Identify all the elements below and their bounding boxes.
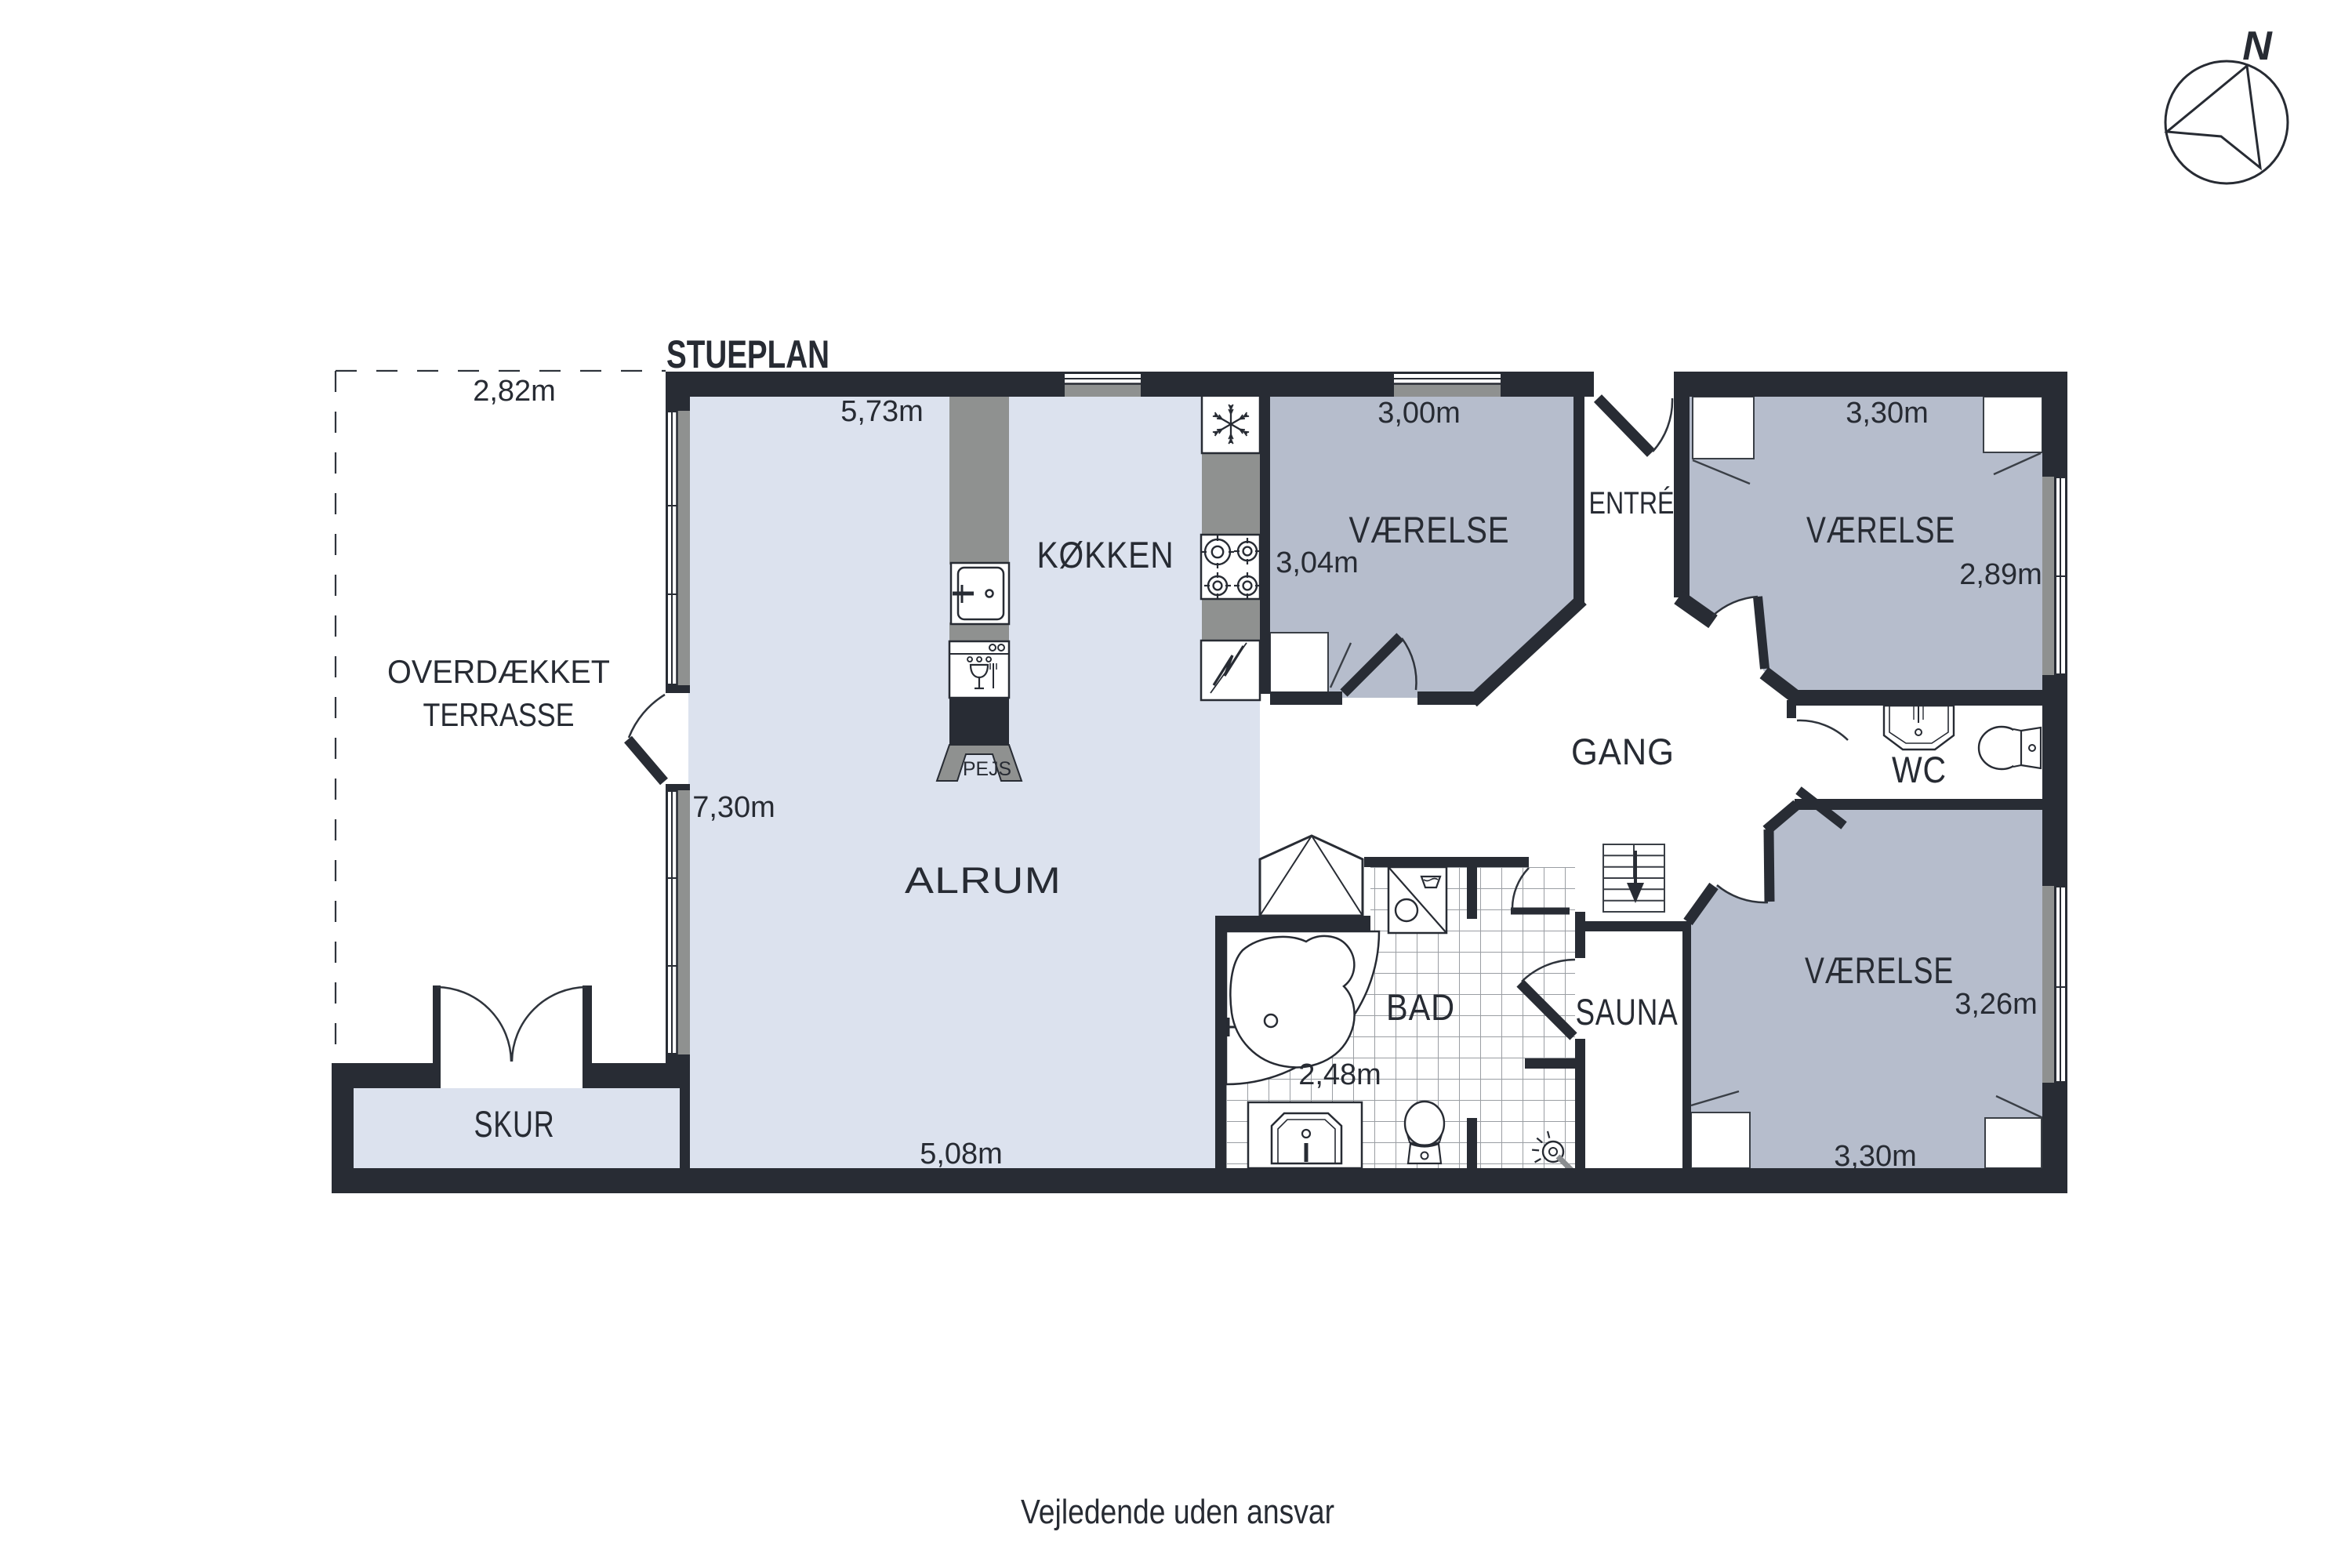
svg-text:VÆRELSE: VÆRELSE	[1349, 509, 1510, 550]
svg-text:2,82m: 2,82m	[473, 375, 556, 408]
svg-text:5,73m: 5,73m	[840, 395, 924, 428]
svg-text:TERRASSE: TERRASSE	[423, 696, 575, 733]
svg-text:WC: WC	[1892, 749, 1947, 790]
svg-text:2,48m: 2,48m	[1298, 1058, 1381, 1091]
svg-text:ALRUM: ALRUM	[905, 859, 1062, 901]
svg-text:PEJS: PEJS	[963, 758, 1011, 780]
svg-text:7,30m: 7,30m	[692, 791, 775, 824]
svg-text:SKUR: SKUR	[474, 1103, 555, 1145]
svg-text:KØKKEN: KØKKEN	[1037, 534, 1174, 575]
svg-text:3,30m: 3,30m	[1834, 1140, 1917, 1173]
svg-text:VÆRELSE: VÆRELSE	[1805, 949, 1954, 991]
svg-text:N: N	[2242, 24, 2273, 69]
svg-text:STUEPLAN: STUEPLAN	[666, 332, 829, 376]
svg-text:OVERDÆKKET: OVERDÆKKET	[387, 653, 610, 690]
svg-text:Vejledende uden ansvar: Vejledende uden ansvar	[1021, 1493, 1334, 1531]
svg-text:2,89m: 2,89m	[1959, 558, 2042, 591]
svg-text:3,00m: 3,00m	[1377, 397, 1461, 430]
svg-text:ENTRÉ: ENTRÉ	[1589, 485, 1675, 521]
svg-text:3,30m: 3,30m	[1846, 397, 1929, 430]
svg-text:BAD: BAD	[1386, 986, 1455, 1028]
svg-text:5,08m: 5,08m	[920, 1138, 1003, 1171]
svg-text:VÆRELSE: VÆRELSE	[1806, 509, 1955, 550]
svg-text:SAUNA: SAUNA	[1576, 991, 1679, 1033]
svg-text:3,26m: 3,26m	[1955, 988, 2038, 1021]
svg-text:3,04m: 3,04m	[1276, 546, 1359, 579]
svg-text:GANG: GANG	[1571, 731, 1675, 772]
